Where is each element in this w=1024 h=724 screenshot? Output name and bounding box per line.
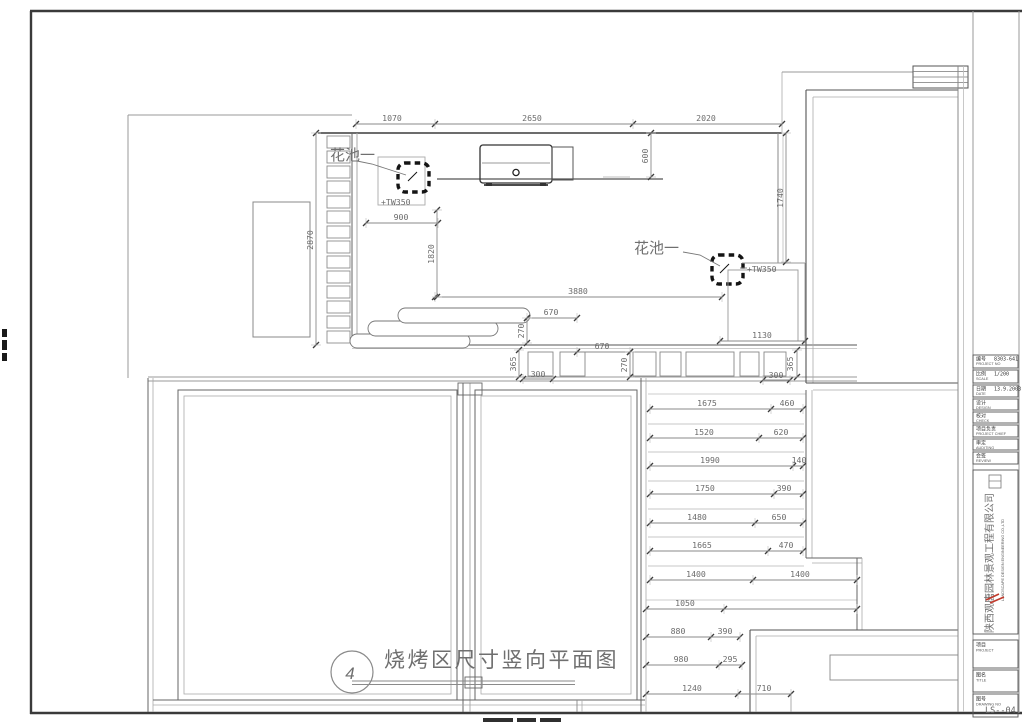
company-logo-icon	[989, 475, 1001, 488]
plan-canvas: 1070265020206001740287090018203880670270…	[0, 0, 1024, 724]
dimension-label: 1990	[700, 455, 720, 465]
stepping-stones	[528, 352, 786, 376]
flower-bed-cell	[327, 211, 350, 223]
flower-bed-cell	[327, 286, 350, 298]
dimension-label: 390	[777, 483, 792, 493]
stepping-stone	[633, 352, 656, 376]
stepping-stone	[660, 352, 681, 376]
title-block: 编号PROJECT NO8303-641比例SCALE1/200日期DATE13…	[973, 355, 1021, 717]
dimension-label: 460	[780, 398, 795, 408]
bottom-watermark	[483, 718, 561, 722]
field-value: 8303-641	[994, 357, 1018, 363]
dimension-label: 620	[774, 427, 789, 437]
field-label-en: REVIEW	[976, 459, 991, 463]
dimension-label: 365	[508, 357, 518, 372]
dimension-label: 270	[619, 358, 629, 373]
dimension-label: 1820	[426, 244, 436, 264]
flower-bed-cell	[327, 301, 350, 313]
field-label-en: PROJECT CHIEF	[976, 432, 1007, 436]
drawing-number: LS--04	[985, 706, 1016, 716]
field-label-en: AUDITING	[976, 446, 994, 450]
flower-bed-cell	[327, 241, 350, 253]
dimension-label: 2020	[696, 113, 716, 123]
company-box: 陕西观唐园林景观工程有限公司 LANDSCAPE DESIGN ENGINEER…	[973, 470, 1018, 634]
sheet-title-box: 图名 TITLE	[973, 670, 1018, 692]
field-label-en: DATE	[976, 392, 986, 396]
flower-bed-cell	[327, 256, 350, 268]
dimension-label: 1740	[775, 188, 785, 208]
dimension-label: 1050	[675, 598, 695, 608]
flower-bed-cell	[327, 181, 350, 193]
bbq-grill	[480, 145, 573, 186]
dimension-label: 390	[718, 626, 733, 636]
drawing-title: 烧烤区尺寸竖向平面图	[384, 649, 619, 672]
dimension-label: 710	[757, 683, 772, 693]
dimension-label: 600	[640, 149, 650, 164]
dimension-label: 980	[674, 654, 689, 664]
project-label-en: PROJECT	[976, 649, 994, 653]
company-name: 陕西观唐园林景观工程有限公司	[983, 493, 996, 633]
stepping-stone	[560, 352, 585, 376]
dimension-label: 650	[772, 512, 787, 522]
dimension-label: 1665	[692, 540, 712, 550]
flower-bed-cell	[327, 271, 350, 283]
dimension-label: 300	[531, 369, 546, 379]
flower-bed-cell	[327, 226, 350, 238]
cad-drawing-sheet: 1070265020206001740287090018203880670270…	[0, 0, 1024, 724]
field-label-en: DESIGN	[976, 406, 991, 410]
dimension-label: 3880	[568, 286, 588, 296]
flower-bed-2-level: +TW350	[747, 264, 777, 274]
flower-pond-2	[683, 252, 805, 343]
dimension-label: 2870	[305, 230, 315, 250]
field-label-en: CHECK	[976, 419, 990, 423]
stepping-stone	[686, 352, 734, 376]
flower-bed-cell	[327, 316, 350, 328]
dimension-label: 140	[792, 455, 807, 465]
dimension-label: 880	[671, 626, 686, 636]
left-margin-marker	[2, 329, 7, 361]
dimension-label: 295	[723, 654, 738, 664]
dimension-label: 1130	[752, 330, 772, 340]
field-value: 1/200	[994, 372, 1009, 378]
dimension-label: 1070	[382, 113, 402, 123]
dimension-label: 270	[516, 324, 526, 339]
plan-labels: 花池一 +TW350 花池一 +TW350	[330, 147, 777, 274]
dimension-label: 900	[394, 212, 409, 222]
dimension-label: 365	[785, 357, 795, 372]
dimension-label: 670	[544, 307, 559, 317]
dimension-label: 1675	[697, 398, 717, 408]
title-label-en: TITLE	[976, 679, 987, 683]
dimension-label: 1750	[695, 483, 715, 493]
dimension-label: 300	[769, 370, 784, 380]
flower-bed-2-label: 花池一	[634, 240, 679, 257]
stepping-stone	[740, 352, 759, 376]
project-box: 项目 PROJECT	[973, 640, 1018, 668]
flower-bed-1-label: 花池一	[330, 147, 375, 164]
dimension-label: 1400	[790, 569, 810, 579]
flower-bed-cell	[327, 331, 350, 343]
dimension-label: 1520	[694, 427, 714, 437]
dimension-label: 670	[595, 341, 610, 351]
dimension-label: 1240	[682, 683, 702, 693]
dimension-label: 470	[779, 540, 794, 550]
flower-bed-cell	[327, 196, 350, 208]
field-label-en: PROJECT NO	[976, 362, 1000, 366]
dimension-label: 2650	[522, 113, 542, 123]
title-label-zh: 图名	[976, 672, 986, 679]
company-name-en: LANDSCAPE DESIGN ENGINEERING CO.,LTD	[1001, 519, 1005, 601]
dimension-label: 1400	[686, 569, 706, 579]
curved-steps	[350, 308, 530, 348]
flower-bed-strip	[327, 136, 350, 343]
field-label-en: SCALE	[976, 377, 989, 381]
view-number: 4	[345, 664, 354, 683]
flower-bed-1-level: +TW350	[381, 197, 411, 207]
flower-bed-cell	[327, 166, 350, 178]
field-value: 13.9.2003	[994, 387, 1021, 393]
dimension-label: 1480	[687, 512, 707, 522]
